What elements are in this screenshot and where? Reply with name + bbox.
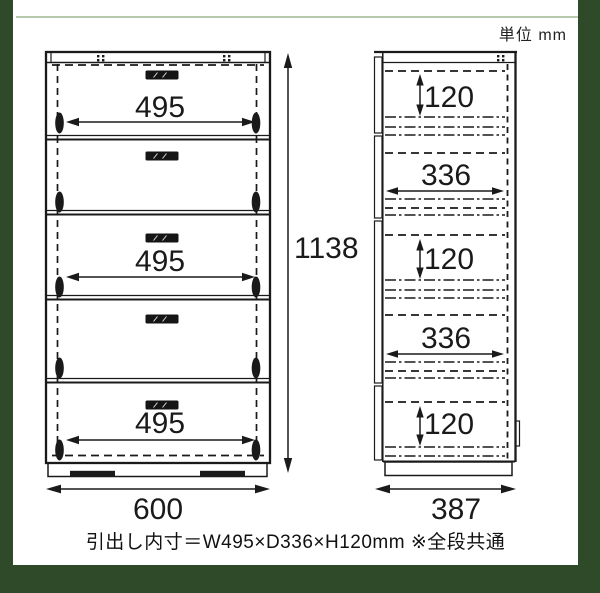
- top-dowel-dots-left: [97, 55, 104, 61]
- front-view: 495 495 495: [46, 52, 270, 477]
- dimension-drawing-svg: 495 495 495: [0, 0, 600, 593]
- drawer-handle-4: [146, 315, 179, 324]
- drawer-depth-label-2: 336: [421, 322, 471, 355]
- drawer-width-dimension-1: 495: [66, 91, 255, 126]
- drawer-width-label-1: 495: [135, 91, 185, 124]
- drawer-height-label-1: 120: [424, 81, 474, 114]
- side-view: 120 120 120 336: [374, 52, 520, 476]
- drawer-width-label-3: 495: [135, 407, 185, 440]
- drawer-inner-size-note: 引出し内寸＝W495×D336×H120mm ※全段共通: [13, 527, 578, 554]
- overall-height-dimension: 1138: [284, 53, 359, 473]
- drawer-width-dimension-3: 495: [66, 407, 255, 444]
- overall-height-label: 1138: [294, 232, 359, 265]
- drawer-width-label-2: 495: [135, 245, 185, 278]
- drawer-handle-2: [146, 152, 179, 161]
- drawer-depth-label-1: 336: [421, 159, 471, 192]
- overall-width-label: 600: [133, 493, 183, 526]
- drawer-height-label-2: 120: [424, 243, 474, 276]
- drawer-depth-dimension-2: 336: [386, 322, 504, 358]
- side-top-dowel-dots: [497, 55, 504, 61]
- overall-width-dimension: 600: [46, 485, 270, 526]
- top-dowel-dots-right: [223, 55, 230, 61]
- drawer-height-dimension-1: 120: [416, 74, 474, 116]
- overall-depth-dimension: 387: [375, 485, 516, 526]
- bottom-drawer-front-protrusion: [516, 421, 520, 446]
- side-base: [385, 462, 512, 476]
- overall-depth-label: 387: [431, 493, 481, 526]
- drawer-handle-1: [146, 71, 179, 80]
- front-base: [48, 463, 267, 477]
- side-back-panel: [375, 57, 383, 460]
- drawer-width-dimension-2: 495: [66, 245, 255, 281]
- product-dimension-diagram: 495 495 495: [0, 0, 600, 593]
- drawer-height-dimension-2: 120: [416, 239, 474, 279]
- drawer-height-dimension-3: 120: [416, 406, 474, 446]
- drawer-height-label-3: 120: [424, 408, 474, 441]
- drawer-depth-dimension-1: 336: [386, 159, 504, 195]
- unit-label: 単位 mm: [499, 21, 567, 45]
- drawer-handle-3: [146, 234, 179, 243]
